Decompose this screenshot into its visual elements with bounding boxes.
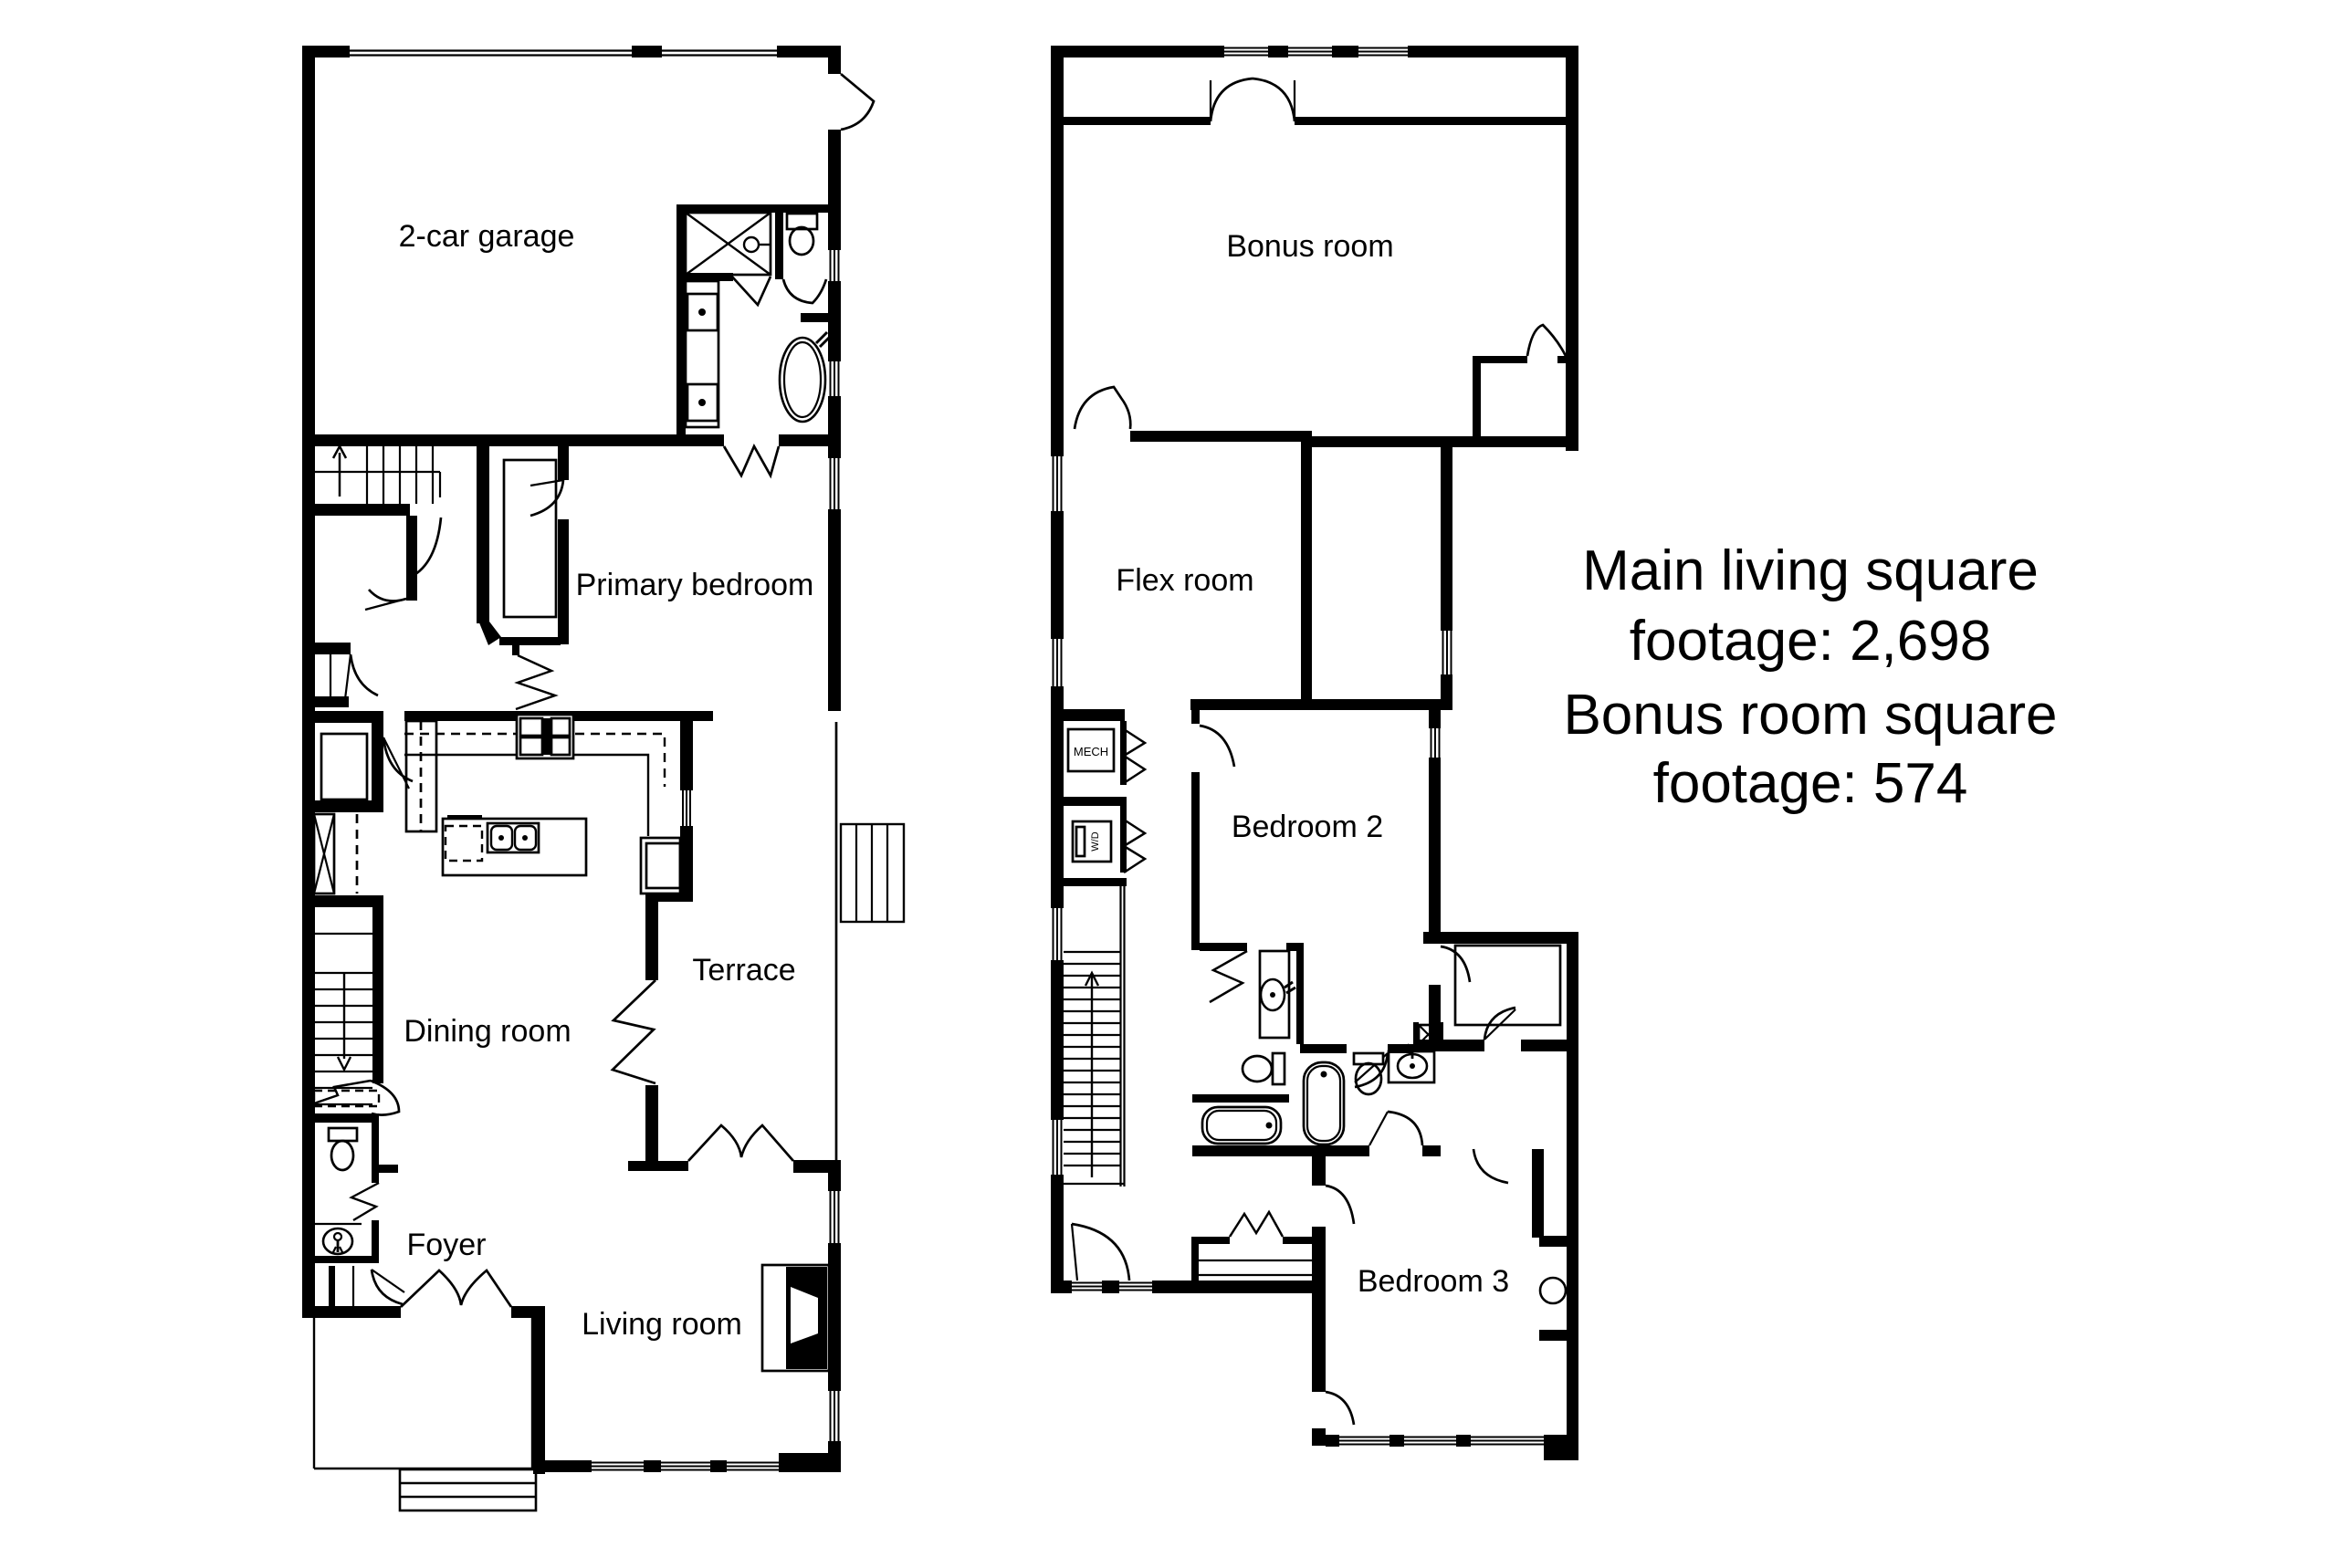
svg-text:MECH: MECH [1074,745,1108,758]
svg-text:Main living square: Main living square [1582,539,2039,602]
svg-text:W/D: W/D [1090,831,1101,851]
svg-text:Bedroom 3: Bedroom 3 [1358,1264,1509,1299]
svg-text:Foyer: Foyer [407,1228,487,1262]
svg-text:Living room: Living room [582,1307,742,1342]
svg-text:footage: 2,698: footage: 2,698 [1630,610,1991,673]
svg-text:Primary bedroom: Primary bedroom [576,568,814,602]
svg-text:Terrace: Terrace [692,953,795,988]
svg-text:Bonus room: Bonus room [1226,229,1393,264]
svg-text:Bonus room square: Bonus room square [1563,684,2057,747]
svg-text:footage: 574: footage: 574 [1653,752,1968,815]
svg-text:2-car garage: 2-car garage [399,219,575,254]
svg-text:Dining room: Dining room [404,1014,571,1049]
svg-text:Flex room: Flex room [1116,563,1253,598]
svg-text:Bedroom 2: Bedroom 2 [1232,810,1383,844]
